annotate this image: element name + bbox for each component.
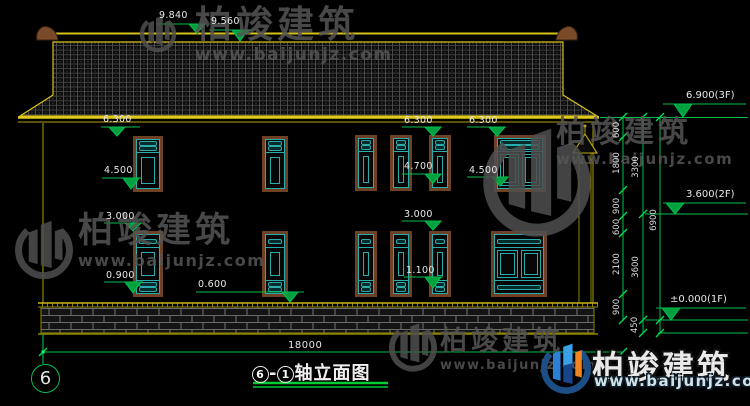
level-label: 3.000 [404,209,433,220]
axis-circle-to: 1 [277,366,294,383]
watermark-top: 柏竣建筑 www.baijunjz.com [195,6,393,64]
level-label: 6.300 [404,115,433,126]
window [262,136,288,192]
chain-dim: 600 [612,219,622,235]
watermark-right: 柏竣建筑 www.baijunjz.com [556,118,733,167]
ridge-ornament-right [556,27,577,40]
dim-node [42,351,45,354]
chain-dim: 6900 [649,209,659,231]
cad-elevation-canvas: 9.840 9.560 6.300 6.300 6.300 4.500 4.70… [0,0,750,406]
level-label: 0.900 [106,270,135,281]
level-label: 4.500 [469,165,498,176]
window [390,231,412,297]
chain-dim: 900 [612,198,622,214]
floor-level-label: 6.900(3F) [686,90,735,101]
watermark-logo-icon [12,212,76,282]
plinth-ledge [38,303,598,307]
level-label: 1.100 [406,265,435,276]
chain-dim: 900 [612,299,622,315]
window [262,231,288,297]
chain-dim: 3600 [631,256,641,278]
axis-bubble: 6 [31,364,60,393]
window [355,231,377,297]
watermark-left: 柏竣建筑 www.baijunjz.com [78,214,265,269]
title-text: 轴立面图 [294,363,370,384]
floor-level-label: ±0.000(1F) [670,294,727,305]
level-label: 6.300 [103,114,132,125]
window [133,136,163,192]
level-label: 3.000 [106,211,135,222]
level-label: 9.560 [211,16,240,27]
ridge-ornament-left [37,27,58,40]
chain-dim: 2100 [612,253,622,275]
overall-dim-label: 18000 [288,340,322,351]
brand-logo-icon [538,336,594,396]
window [429,231,451,297]
level-label: 4.500 [104,165,133,176]
title-separator: - [269,363,277,384]
drawing-title: 6-1轴立面图 [252,359,370,385]
chain-dim: 1800 [612,152,622,174]
chain-dim: 600 [612,122,622,138]
chain-dim: 3300 [631,156,641,178]
level-label: 9.840 [159,10,188,21]
watermark-logo-icon [386,316,440,374]
window [355,135,377,191]
brand-logo: 柏竣建筑 www.baijunjz.com [538,336,594,400]
level-label: 6.300 [469,115,498,126]
level-label: 0.600 [198,279,227,290]
floor-level-label: 3.600(2F) [686,189,735,200]
level-label: 4.700 [404,161,433,172]
brand-url: www.baijunjz.com [594,372,750,390]
chain-dim: 450 [630,317,640,333]
axis-circle-from: 6 [252,366,269,383]
